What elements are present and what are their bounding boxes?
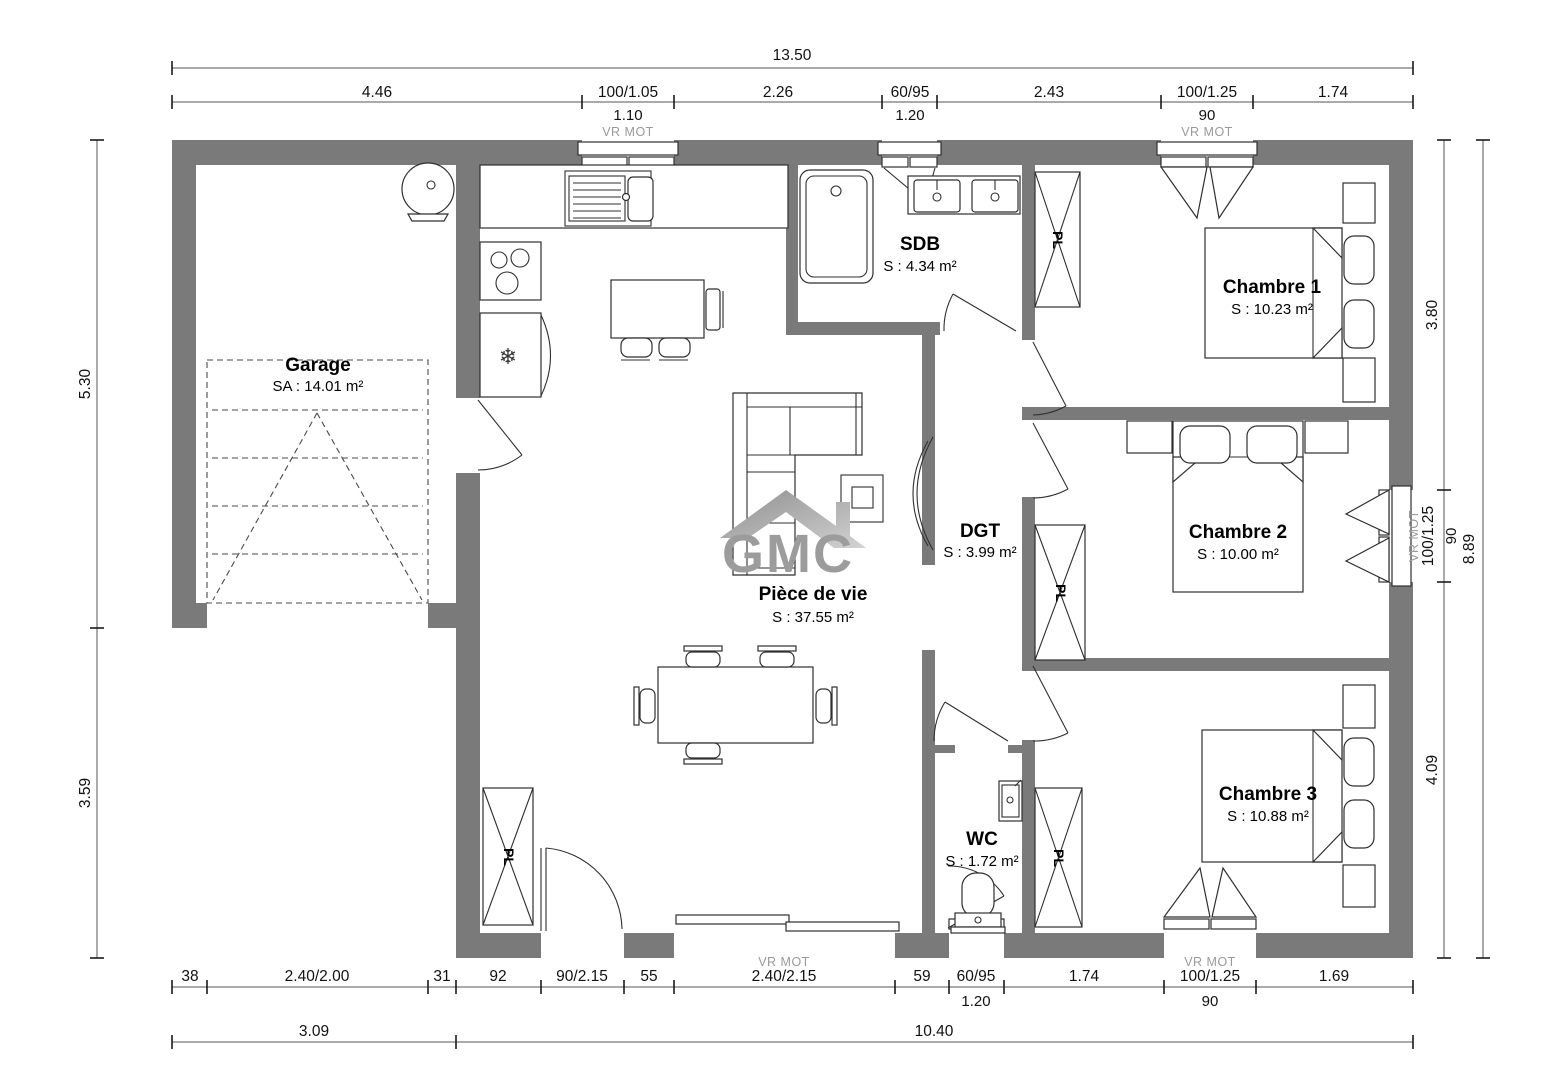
shutter-label: VR MOT bbox=[1184, 955, 1236, 969]
dining-table bbox=[634, 646, 837, 764]
dim-sublabel: 1.20 bbox=[895, 107, 924, 124]
kitchen-counter bbox=[480, 165, 788, 228]
garage-door-dashed bbox=[207, 360, 428, 603]
shutter-label: VR MOT bbox=[602, 125, 654, 139]
dim-label: 3.09 bbox=[299, 1023, 329, 1040]
dim-label: 10.40 bbox=[915, 1023, 954, 1040]
dim-label: 3.80 bbox=[1424, 300, 1441, 331]
room-name-chambre2: Chambre 2 bbox=[1189, 522, 1287, 543]
room-area-wc: S : 1.72 m² bbox=[945, 853, 1018, 870]
dim-sublabel: 90 bbox=[1202, 993, 1219, 1010]
toilet bbox=[951, 873, 1005, 933]
dim-sublabel: 90 bbox=[1199, 107, 1216, 124]
dim-label: 60/95 bbox=[891, 84, 930, 101]
dim-label: 55 bbox=[640, 968, 657, 985]
dim-label: 100/1.05 bbox=[598, 84, 658, 101]
bathtub bbox=[800, 170, 873, 283]
room-area-chambre3: S : 10.88 m² bbox=[1227, 808, 1309, 825]
room-name-dgt: DGT bbox=[960, 521, 1001, 542]
chambre3-door bbox=[1033, 666, 1068, 741]
dimension-right: 3.80 100/1.25 90 VR MOT 4.09 8.89 bbox=[1407, 140, 1490, 958]
dim-label: 92 bbox=[489, 968, 506, 985]
bay-window bbox=[676, 915, 899, 931]
room-name-chambre1: Chambre 1 bbox=[1223, 277, 1322, 298]
room-area-dgt: S : 3.99 m² bbox=[943, 544, 1016, 561]
room-area-sdb: S : 4.34 m² bbox=[883, 258, 956, 275]
dim-label: 1.74 bbox=[1069, 968, 1100, 985]
dim-label: 2.40/2.00 bbox=[285, 968, 350, 985]
kitchen-island bbox=[611, 280, 723, 360]
dim-label: 1.74 bbox=[1318, 84, 1349, 101]
room-area-chambre1: S : 10.23 m² bbox=[1231, 301, 1313, 318]
closet-entry: PL bbox=[483, 788, 533, 925]
dim-label: 90/2.15 bbox=[556, 968, 608, 985]
sdb-door bbox=[944, 294, 1016, 331]
dim-sublabel: 1.20 bbox=[961, 993, 990, 1010]
room-area-garage: SA : 14.01 m² bbox=[273, 378, 364, 395]
dimension-top: 13.50 4.46 100/1.05 2.26 60/95 2.43 100/… bbox=[172, 47, 1413, 139]
chambre3-window bbox=[1164, 868, 1256, 929]
bed-chambre2 bbox=[1127, 421, 1348, 592]
room-name-sdb: SDB bbox=[900, 234, 940, 255]
shutter-label: VR MOT bbox=[1181, 125, 1233, 139]
dim-label: 4.46 bbox=[362, 84, 392, 101]
closet-label: PL bbox=[1050, 231, 1066, 249]
entry-door bbox=[541, 848, 622, 931]
svg-text:❄: ❄ bbox=[499, 344, 517, 369]
chambre2-door bbox=[1033, 423, 1068, 498]
dim-label: 60/95 bbox=[957, 968, 996, 985]
dim-sublabel: 90 bbox=[1443, 528, 1460, 545]
dim-label: 3.59 bbox=[77, 778, 94, 808]
dim-label: 1.69 bbox=[1319, 968, 1349, 985]
closet-chambre1: PL bbox=[1035, 172, 1080, 307]
shutter-label: VR MOT bbox=[1407, 510, 1421, 562]
dim-label: 31 bbox=[433, 968, 450, 985]
shutter-label: VR MOT bbox=[758, 955, 810, 969]
room-name-piece-de-vie: Pièce de vie bbox=[759, 584, 868, 605]
dim-label: 100/1.25 bbox=[1180, 968, 1240, 985]
dim-top-total: 13.50 bbox=[773, 47, 812, 64]
chambre1-window bbox=[1157, 142, 1257, 218]
wc-basin bbox=[999, 780, 1022, 821]
dimension-bottom: 38 2.40/2.00 31 92 90/2.15 55 2.40/2.15 … bbox=[172, 955, 1413, 1049]
dim-sublabel: 1.10 bbox=[613, 107, 642, 124]
dim-label: 2.40/2.15 bbox=[752, 968, 817, 985]
closet-label: PL bbox=[1053, 584, 1069, 602]
closet-label: PL bbox=[1051, 849, 1067, 867]
chambre1-door bbox=[1033, 342, 1066, 415]
dim-label: 38 bbox=[181, 968, 198, 985]
wc-door bbox=[934, 702, 1008, 741]
closet-chambre2: PL bbox=[1035, 525, 1085, 660]
dim-label: 100/1.25 bbox=[1177, 84, 1237, 101]
dim-label: 8.89 bbox=[1461, 534, 1478, 564]
garage-kitchen-door bbox=[478, 400, 522, 470]
dim-label: 2.43 bbox=[1034, 84, 1064, 101]
dim-label: 59 bbox=[913, 968, 930, 985]
dim-label: 5.30 bbox=[77, 369, 94, 400]
closet-label: PL bbox=[501, 848, 517, 866]
chambre2-window bbox=[1346, 486, 1411, 586]
room-name-garage: Garage bbox=[285, 355, 350, 376]
room-area-chambre2: S : 10.00 m² bbox=[1197, 546, 1279, 563]
room-area-piece-de-vie: S : 37.55 m² bbox=[772, 609, 854, 626]
fridge: ❄ bbox=[480, 313, 551, 397]
water-heater bbox=[402, 163, 454, 221]
dim-label: 2.26 bbox=[763, 84, 793, 101]
double-vanity bbox=[908, 176, 1020, 214]
dim-label: 4.09 bbox=[1424, 755, 1441, 785]
gmc-logo-text: GMC bbox=[722, 524, 854, 584]
floor-plan: ❄ bbox=[0, 0, 1560, 1084]
dim-label: 100/1.25 bbox=[1420, 506, 1437, 566]
room-name-wc: WC bbox=[966, 829, 998, 850]
stove bbox=[480, 242, 541, 300]
dimension-left: 5.30 3.59 bbox=[77, 140, 104, 958]
closet-chambre3: PL bbox=[1035, 788, 1082, 927]
room-name-chambre3: Chambre 3 bbox=[1219, 784, 1317, 805]
